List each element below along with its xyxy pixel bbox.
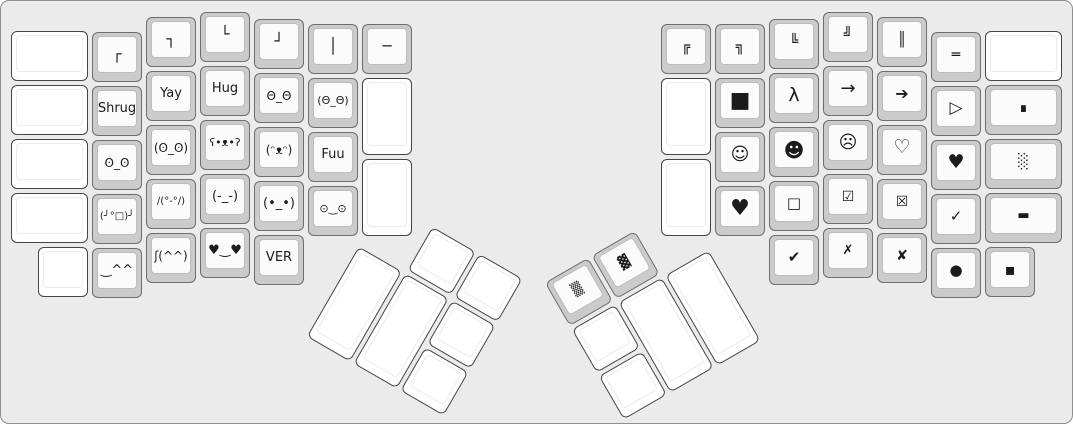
key-blank[interactable] <box>11 85 88 135</box>
key-hug[interactable]: Hug <box>200 66 250 116</box>
key-blank[interactable] <box>985 31 1062 81</box>
key-box-corner-bottom-right-legend: ┘ <box>274 34 283 49</box>
key-wide-eyes-paren-legend: (Θ_Θ) <box>317 95 348 106</box>
keycap-face <box>367 163 407 227</box>
key-wide-eyes[interactable]: Θ_Θ <box>254 73 304 123</box>
key-table-unflip-legend: ∕(°-°∕) <box>157 197 185 207</box>
key-bear-face-legend: ʕ•ᴥ•ʔ <box>210 137 241 148</box>
key-triangle-right[interactable]: ▷ <box>931 86 981 136</box>
keycap-face: Fuu <box>313 136 353 173</box>
keycap-face: ♥‿♥ <box>205 232 245 269</box>
keyboard-canvas: ┌Shrugʘ_ʘ(╯°□)╯‿^^┐Yay(ʘ_ʘ)∕(°-°∕)ʃ(^^)└… <box>0 0 1073 424</box>
keycap-face: ʘ_ʘ <box>97 144 137 181</box>
keycap-face: Shrug <box>97 90 137 127</box>
keycap-face: ┘ <box>259 23 299 60</box>
key-double-horizontal[interactable]: ═ <box>931 32 981 82</box>
key-annoyed-face-legend: (-_-) <box>212 190 238 203</box>
keycap-face <box>666 163 706 227</box>
key-square-white[interactable]: □ <box>769 181 819 231</box>
keycap-face: ▪ <box>990 251 1030 288</box>
key-box-corner-top-left[interactable]: ┌ <box>92 32 142 82</box>
key-esh-smile[interactable]: ʃ(^^) <box>146 233 196 283</box>
key-blank-tall[interactable] <box>661 159 711 236</box>
key-double-corner-bottom-left-legend: ╚ <box>790 35 798 49</box>
keycap-face: ➔ <box>882 75 922 112</box>
keycap-face: ✔ <box>774 239 814 276</box>
keycap-face: → <box>828 70 868 107</box>
keycap-face: ╝ <box>828 16 868 53</box>
key-worried-face-legend: ⊙‿⊙ <box>319 203 346 214</box>
keycap-face: ☒ <box>882 183 922 220</box>
key-table-unflip[interactable]: ∕(°-°∕) <box>146 179 196 229</box>
key-double-corner-bottom-right[interactable]: ╝ <box>823 12 873 62</box>
key-worried-face[interactable]: ⊙‿⊙ <box>308 186 358 236</box>
key-x-mark-legend: ✗ <box>843 244 854 257</box>
keycap-face <box>16 197 83 234</box>
keycap-face: ┌ <box>97 36 137 73</box>
keycap-face: ʕ•ᴥ•ʔ <box>205 124 245 161</box>
key-happy-carets-legend: ‿^^ <box>101 264 133 277</box>
key-shrug[interactable]: Shrug <box>92 86 142 136</box>
key-frown-face-legend: ☹ <box>839 134 858 152</box>
keycap-face: ʃ(^^) <box>151 237 191 274</box>
keycap-face: ═ <box>936 36 976 73</box>
key-x-heavy-legend: ✘ <box>896 249 908 263</box>
key-double-vertical[interactable]: ║ <box>877 17 927 67</box>
keycap-face: ‿^^ <box>97 252 137 289</box>
keycap-face <box>16 89 83 126</box>
key-box-corner-bottom-left[interactable]: └ <box>200 12 250 62</box>
keycap-face: ∎ <box>990 89 1057 126</box>
key-double-corner-top-left-legend: ╔ <box>682 40 690 54</box>
key-heart-eyes[interactable]: ♥‿♥ <box>200 228 250 278</box>
key-heart-white-legend: ♡ <box>893 138 910 157</box>
key-checked-box-legend: ☑ <box>842 190 855 204</box>
keycap-face <box>578 310 631 362</box>
key-double-corner-top-left[interactable]: ╔ <box>661 24 711 74</box>
keycap-face: ☺ <box>720 136 760 173</box>
key-blank-tall[interactable] <box>362 78 412 155</box>
keycap-face: (•_•) <box>259 185 299 222</box>
key-esh-smile-legend: ʃ(^^) <box>154 250 188 262</box>
keycap-face: ■ <box>720 82 760 119</box>
key-wide-eyes-paren[interactable]: (Θ_Θ) <box>308 78 358 128</box>
keycap-face: ╔ <box>666 28 706 65</box>
keycap-face: ▷ <box>936 90 976 127</box>
keycap-face: (-_-) <box>205 178 245 215</box>
key-table-flip[interactable]: (╯°□)╯ <box>92 194 142 244</box>
key-heart-eyes-legend: ♥‿♥ <box>208 244 242 257</box>
key-blank[interactable] <box>11 193 88 243</box>
key-double-corner-top-right[interactable]: ╗ <box>715 24 765 74</box>
keycap-face <box>605 357 658 409</box>
keycap-face: (ʘ_ʘ) <box>151 129 191 166</box>
key-check-heavy-legend: ✔ <box>788 250 801 265</box>
key-x-heavy[interactable]: ✘ <box>877 233 927 283</box>
key-qed-square-legend: ∎ <box>1019 101 1028 115</box>
key-crossed-box-legend: ☒ <box>896 195 909 209</box>
keycap-face: ░ <box>990 143 1057 180</box>
key-arrow-right-heavy-legend: ➔ <box>895 86 908 102</box>
key-heart-black[interactable]: ♥ <box>931 140 981 190</box>
key-fuu[interactable]: Fuu <box>308 132 358 182</box>
key-heart-large[interactable]: ♥ <box>715 186 765 236</box>
key-staring-face-legend: (•_•) <box>263 197 295 210</box>
key-happy-carets[interactable]: ‿^^ <box>92 248 142 298</box>
keycap-face: Yay <box>151 75 191 112</box>
key-look-of-disapproval-legend: ʘ_ʘ <box>105 157 130 169</box>
keycap-face: (ᵔᴥᵔ) <box>259 131 299 168</box>
key-wide-eyes-legend: Θ_Θ <box>267 90 292 102</box>
key-heart-black-legend: ♥ <box>947 153 964 172</box>
key-shrug-legend: Shrug <box>98 102 136 115</box>
key-black-circle-legend: ● <box>949 263 962 278</box>
keyboard-layout-stage: ┌Shrugʘ_ʘ(╯°□)╯‿^^┐Yay(ʘ_ʘ)∕(°-°∕)ʃ(^^)└… <box>0 0 1073 424</box>
key-triangle-right-legend: ▷ <box>949 100 962 117</box>
key-check-heavy[interactable]: ✔ <box>769 235 819 285</box>
key-black-small-square-legend: ▪ <box>1005 262 1016 278</box>
key-box-vertical-legend: │ <box>328 39 337 54</box>
keycap-face: ─ <box>367 28 407 65</box>
keycap-face <box>436 306 489 358</box>
keycap-face: ║ <box>882 21 922 58</box>
keycap-face: ♥ <box>936 144 976 181</box>
keycap-face: └ <box>205 16 245 53</box>
keycap-face: ╚ <box>774 23 814 60</box>
key-box-horizontal-legend: ─ <box>382 39 391 54</box>
key-black-small-square[interactable]: ▪ <box>985 247 1035 297</box>
key-table-flip-legend: (╯°□)╯ <box>100 212 134 222</box>
key-double-corner-top-right-legend: ╗ <box>736 40 744 54</box>
key-double-corner-bottom-right-legend: ╝ <box>844 28 852 42</box>
key-blank[interactable] <box>11 139 88 189</box>
key-black-circle[interactable]: ● <box>931 248 981 298</box>
keycap-face: Θ_Θ <box>259 77 299 114</box>
key-blank-tall[interactable] <box>661 78 711 155</box>
key-yay[interactable]: Yay <box>146 71 196 121</box>
key-shade-light[interactable]: ░ <box>985 139 1062 189</box>
keycap-face: ☹ <box>828 124 868 161</box>
key-box-horizontal[interactable]: ─ <box>362 24 412 74</box>
keycap-face: ∕(°-°∕) <box>151 183 191 220</box>
key-box-corner-top-right[interactable]: ┐ <box>146 17 196 67</box>
key-shade-light-legend: ░ <box>1018 155 1029 169</box>
keycap-face: ● <box>936 252 976 289</box>
keycap-face <box>16 35 83 72</box>
key-blank[interactable] <box>38 247 88 297</box>
key-hug-legend: Hug <box>212 82 238 95</box>
keycap-face: ✗ <box>828 232 868 269</box>
key-qed-square[interactable]: ∎ <box>985 85 1062 135</box>
keycap-face: ⊙‿⊙ <box>313 190 353 227</box>
keycap-face <box>463 260 516 312</box>
key-checked-box[interactable]: ☑ <box>823 174 873 224</box>
key-disapproval-paren[interactable]: (ʘ_ʘ) <box>146 125 196 175</box>
key-blank[interactable] <box>11 31 88 81</box>
keycap-face: ✘ <box>882 237 922 274</box>
key-lambda-legend: λ <box>788 86 799 105</box>
key-staring-face[interactable]: (•_•) <box>254 181 304 231</box>
key-crossed-box[interactable]: ☒ <box>877 179 927 229</box>
keycap-face: ╗ <box>720 28 760 65</box>
key-bear-face[interactable]: ʕ•ᴥ•ʔ <box>200 120 250 170</box>
key-shade-medium-legend: ▒ <box>570 282 585 298</box>
key-box-corner-bottom-left-legend: └ <box>220 27 229 42</box>
key-double-corner-bottom-left[interactable]: ╚ <box>769 19 819 69</box>
key-box-corner-top-left-legend: ┌ <box>112 47 121 62</box>
keycap-face: (Θ_Θ) <box>313 82 353 119</box>
key-dog-face-legend: (ᵔᴥᵔ) <box>266 144 293 156</box>
key-box-corner-bottom-right[interactable]: ┘ <box>254 19 304 69</box>
key-look-of-disapproval[interactable]: ʘ_ʘ <box>92 140 142 190</box>
key-dog-face[interactable]: (ᵔᴥᵔ) <box>254 127 304 177</box>
key-arrow-right-legend: → <box>840 80 855 98</box>
key-black-square-large-legend: ■ <box>730 90 751 112</box>
keycap-face: λ <box>774 77 814 114</box>
key-square-white-legend: □ <box>787 196 801 211</box>
key-heart-white[interactable]: ♡ <box>877 125 927 175</box>
keycap-face: □ <box>774 185 814 222</box>
key-box-corner-top-right-legend: ┐ <box>166 32 175 47</box>
key-heart-large-legend: ♥ <box>730 198 750 220</box>
keycap-face: ☑ <box>828 178 868 215</box>
keycap-face: ▓ <box>598 237 651 289</box>
key-disapproval-paren-legend: (ʘ_ʘ) <box>154 142 188 154</box>
keycap-face: ✓ <box>936 198 976 235</box>
key-double-horizontal-legend: ═ <box>952 48 960 62</box>
keycap-face: ┐ <box>151 21 191 58</box>
keycap-face <box>416 233 469 285</box>
key-arrow-right[interactable]: → <box>823 66 873 116</box>
key-check-mark-legend: ✓ <box>950 209 963 224</box>
key-black-square-large[interactable]: ■ <box>715 78 765 128</box>
key-smiley-white-legend: ☺ <box>731 146 750 164</box>
keycap-face: ▒ <box>551 264 604 316</box>
keycap-face: ♥ <box>720 190 760 227</box>
key-blank-tall[interactable] <box>362 159 412 236</box>
key-arrow-right-heavy[interactable]: ➔ <box>877 71 927 121</box>
key-frown-face[interactable]: ☹ <box>823 120 873 170</box>
keycap-face <box>16 143 83 180</box>
keycap-face: │ <box>313 28 353 65</box>
keycap-face: ▬ <box>990 197 1057 234</box>
key-black-bar[interactable]: ▬ <box>985 193 1062 243</box>
keycap-face <box>990 35 1057 72</box>
key-fuu-legend: Fuu <box>321 148 344 161</box>
keycap-face: (╯°□)╯ <box>97 198 137 235</box>
key-smiley-white[interactable]: ☺ <box>715 132 765 182</box>
key-lambda[interactable]: λ <box>769 73 819 123</box>
keycap-face: Hug <box>205 70 245 107</box>
key-ver[interactable]: VER <box>254 235 304 285</box>
key-annoyed-face[interactable]: (-_-) <box>200 174 250 224</box>
keycap-face: ♡ <box>882 129 922 166</box>
key-shade-dark-legend: ▓ <box>617 255 632 271</box>
key-double-vertical-legend: ║ <box>898 33 906 47</box>
key-smiley-black[interactable]: ☻ <box>769 127 819 177</box>
key-x-mark[interactable]: ✗ <box>823 228 873 278</box>
key-black-bar-legend: ▬ <box>1017 209 1029 222</box>
key-smiley-black-legend: ☻ <box>784 140 805 160</box>
keycap-face <box>43 251 83 288</box>
keycap-face <box>666 82 706 146</box>
keycap-face: VER <box>259 239 299 276</box>
keycap-face <box>409 353 462 405</box>
key-yay-legend: Yay <box>160 87 182 100</box>
key-box-vertical[interactable]: │ <box>308 24 358 74</box>
keycap-face: ☻ <box>774 131 814 168</box>
key-check-mark[interactable]: ✓ <box>931 194 981 244</box>
keycap-face <box>367 82 407 146</box>
key-ver-legend: VER <box>266 251 292 264</box>
